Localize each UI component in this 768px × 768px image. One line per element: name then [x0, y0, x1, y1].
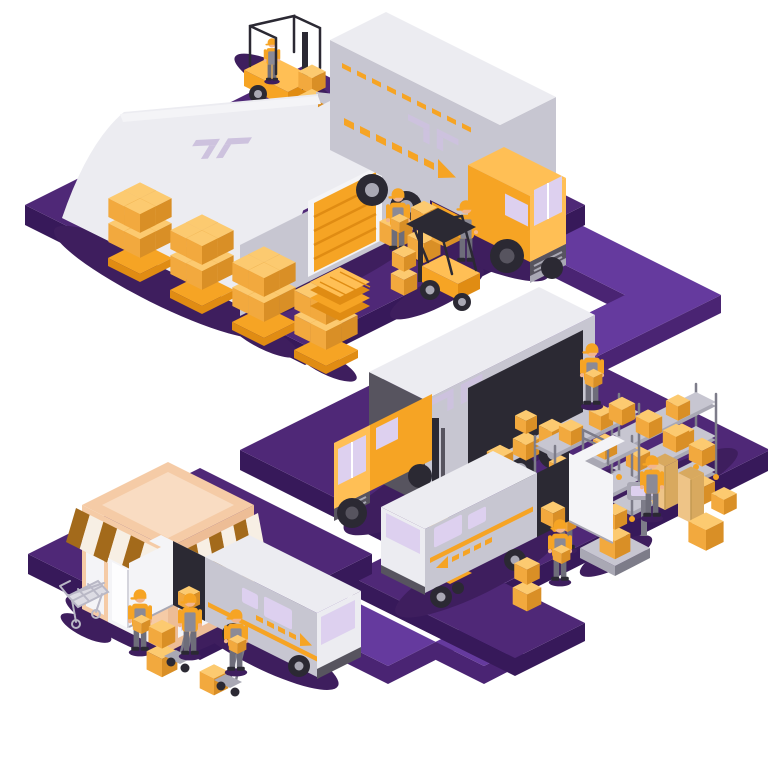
logistics-scene: Isometric logistics and delivery process…: [0, 0, 768, 768]
pallet-stack: [232, 246, 296, 346]
illustration-canvas: Isometric logistics and delivery process…: [0, 0, 768, 768]
pallet-stack: [108, 182, 172, 282]
pallet-stack: [170, 214, 234, 314]
cab-wheel: [541, 257, 563, 279]
